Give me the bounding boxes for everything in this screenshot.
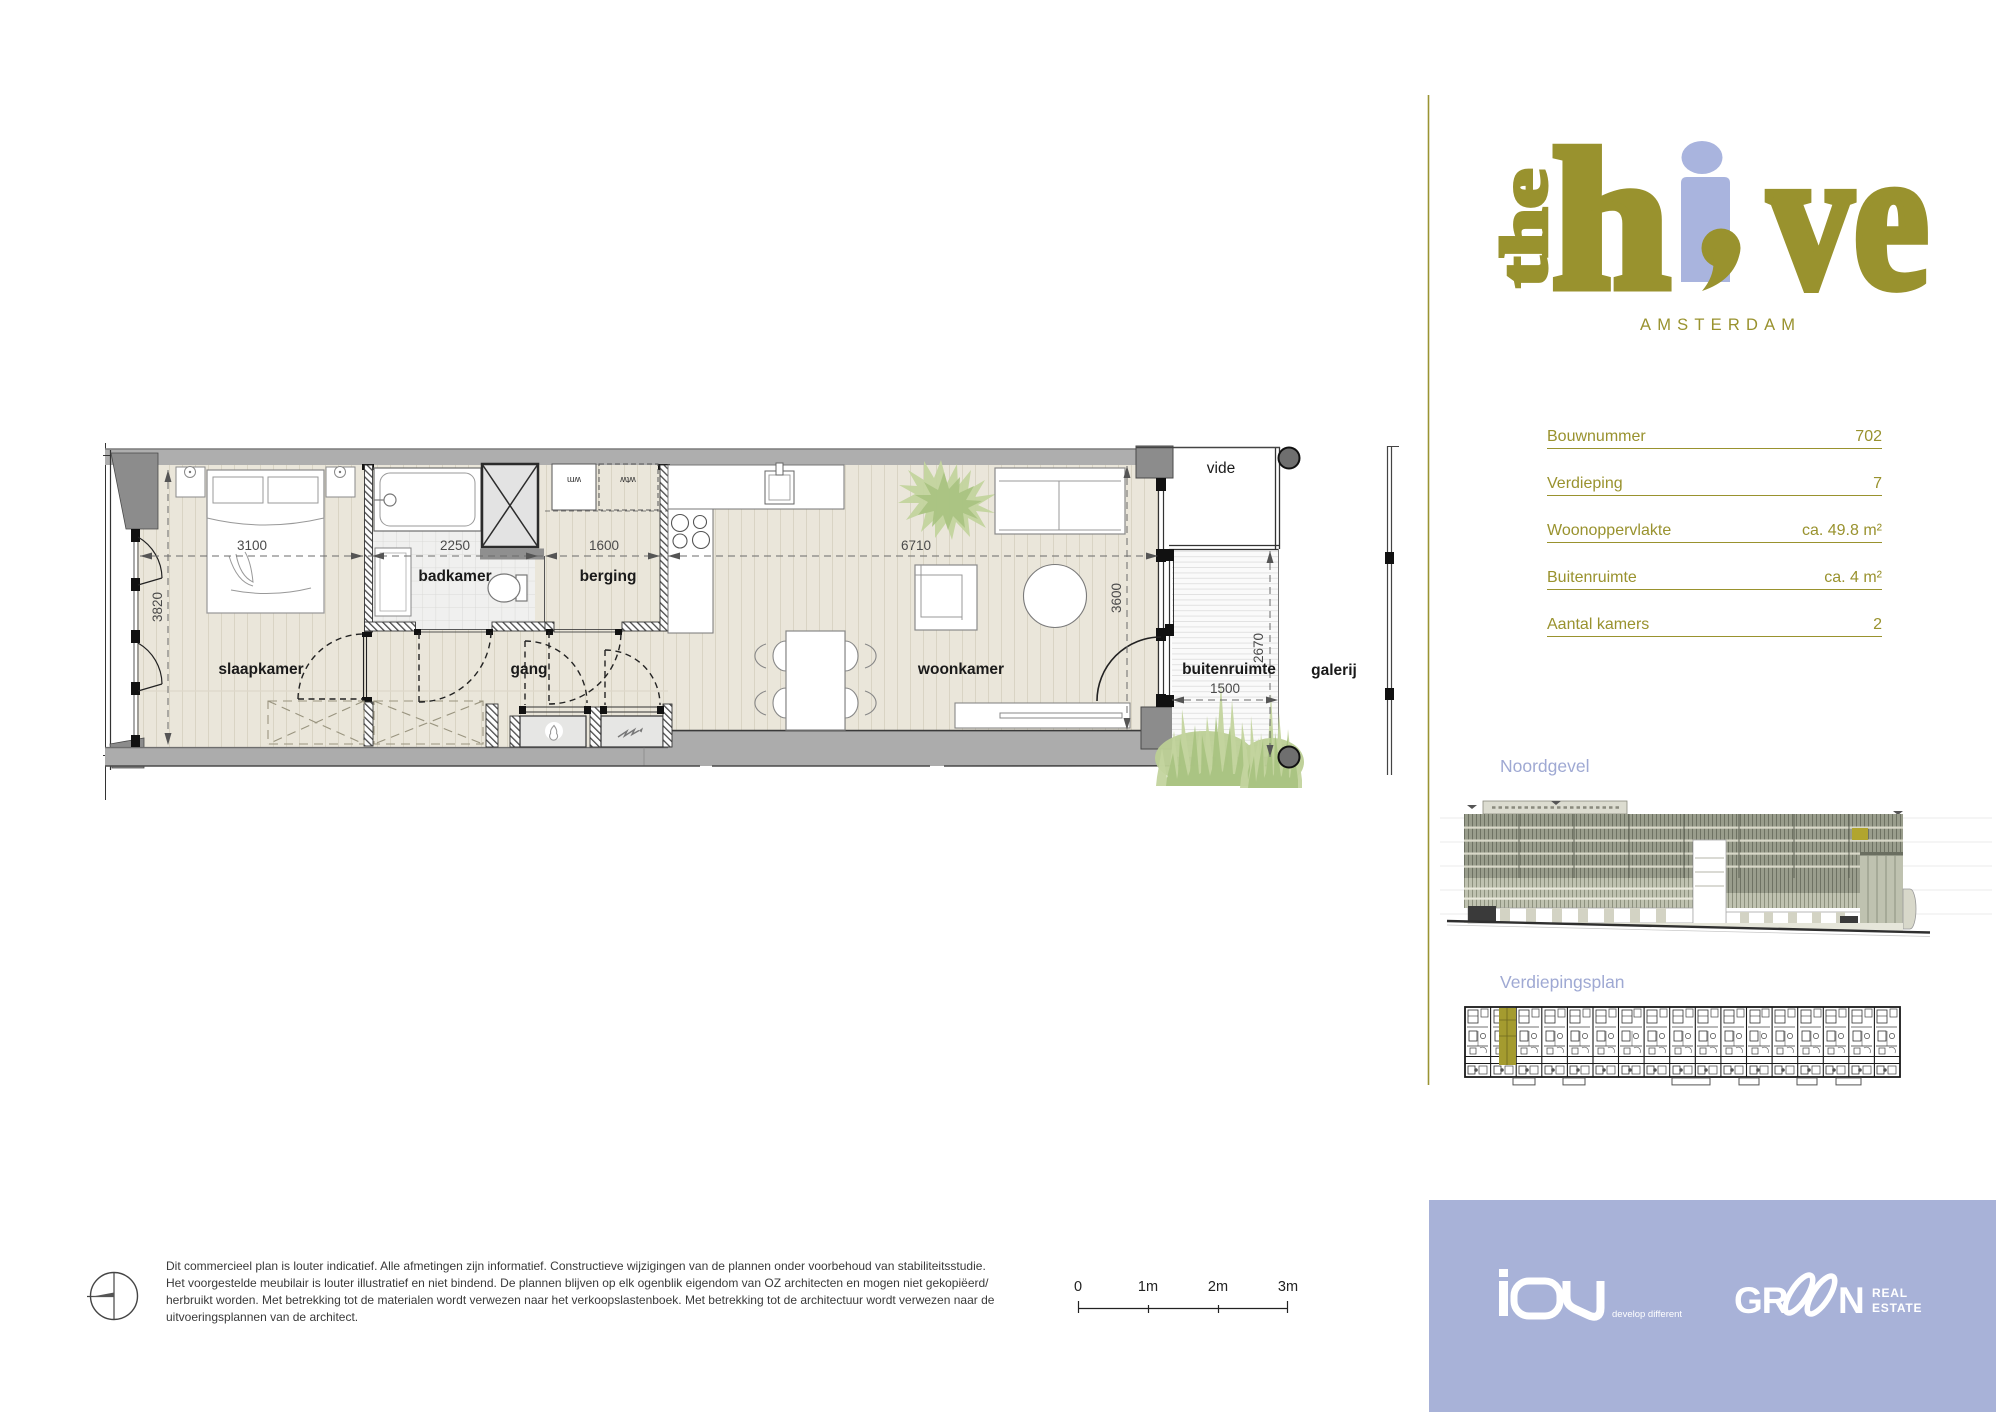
svg-text:REAL: REAL (1872, 1286, 1908, 1300)
svg-text:ca. 49.8 m²: ca. 49.8 m² (1802, 522, 1883, 539)
svg-text:2: 2 (1873, 616, 1882, 633)
svg-text:ESTATE: ESTATE (1872, 1301, 1922, 1315)
svg-text:7: 7 (1873, 475, 1882, 492)
svg-text:the: the (1488, 169, 1561, 287)
svg-text:Noordgevel: Noordgevel (1500, 756, 1590, 776)
svg-text:ca. 4 m²: ca. 4 m² (1824, 569, 1882, 586)
svg-text:Bouwnummer: Bouwnummer (1547, 428, 1646, 445)
svg-text:Verdieping: Verdieping (1547, 475, 1623, 492)
svg-text:1m: 1m (1138, 1279, 1158, 1295)
svg-text:Het voorgestelde meubilair is: Het voorgestelde meubilair is louter ill… (166, 1276, 989, 1290)
svg-text:3820: 3820 (150, 592, 165, 622)
svg-text:h: h (1552, 110, 1670, 331)
svg-text:Woonoppervlakte: Woonoppervlakte (1547, 522, 1671, 539)
svg-text:berging: berging (580, 568, 637, 585)
svg-text:1600: 1600 (589, 538, 619, 553)
svg-text:gang: gang (510, 661, 547, 678)
svg-text:galerij: galerij (1311, 662, 1357, 679)
svg-text:3600: 3600 (1109, 583, 1124, 613)
svg-text:Buitenruimte: Buitenruimte (1547, 569, 1637, 586)
svg-text:702: 702 (1855, 428, 1882, 445)
svg-text:Dit commercieel plan is louter: Dit commercieel plan is louter indicatie… (166, 1259, 986, 1273)
svg-text:buitenruimte: buitenruimte (1182, 661, 1276, 678)
svg-text:wm: wm (567, 475, 582, 485)
svg-text:herbruikt worden. Met betrekki: herbruikt worden. Met betrekking tot de … (166, 1293, 995, 1307)
svg-text:develop different: develop different (1612, 1309, 1682, 1320)
svg-text:3m: 3m (1278, 1279, 1298, 1295)
svg-text:badkamer: badkamer (418, 568, 491, 585)
svg-text:wtw: wtw (620, 475, 637, 485)
svg-text:Aantal kamers: Aantal kamers (1547, 616, 1649, 633)
svg-text:2250: 2250 (440, 538, 470, 553)
svg-text:0: 0 (1074, 1279, 1082, 1295)
svg-text:ve: ve (1768, 105, 1929, 332)
svg-text:2m: 2m (1208, 1279, 1228, 1295)
svg-text:vide: vide (1207, 460, 1235, 477)
svg-text:1500: 1500 (1210, 681, 1240, 696)
svg-text:woonkamer: woonkamer (917, 661, 1004, 678)
svg-text:slaapkamer: slaapkamer (218, 661, 303, 678)
svg-text:Verdiepingsplan: Verdiepingsplan (1500, 972, 1625, 992)
svg-text:6710: 6710 (901, 538, 931, 553)
svg-text:GR: GR (1734, 1280, 1788, 1321)
svg-text:2670: 2670 (1251, 633, 1266, 663)
svg-text:N: N (1838, 1280, 1865, 1321)
svg-text:3100: 3100 (237, 538, 267, 553)
svg-text:AMSTERDAM: AMSTERDAM (1640, 316, 1801, 334)
svg-text:uitvoeringsplannen van de arch: uitvoeringsplannen van de architect. (166, 1310, 358, 1324)
